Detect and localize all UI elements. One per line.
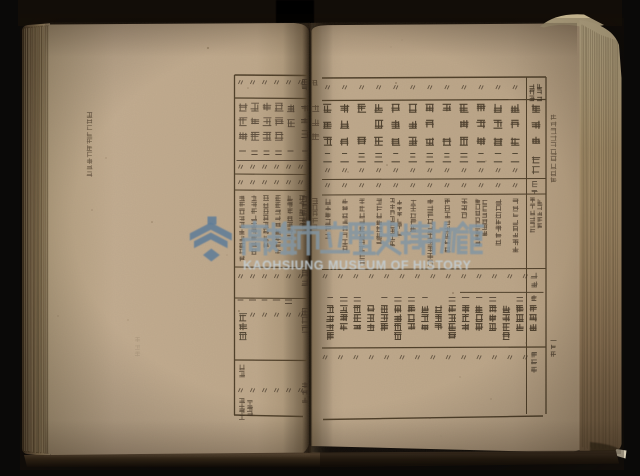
svg-text:KAOHSIUNG MUSEUM OF HISTORY: KAOHSIUNG MUSEUM OF HISTORY (243, 259, 472, 273)
